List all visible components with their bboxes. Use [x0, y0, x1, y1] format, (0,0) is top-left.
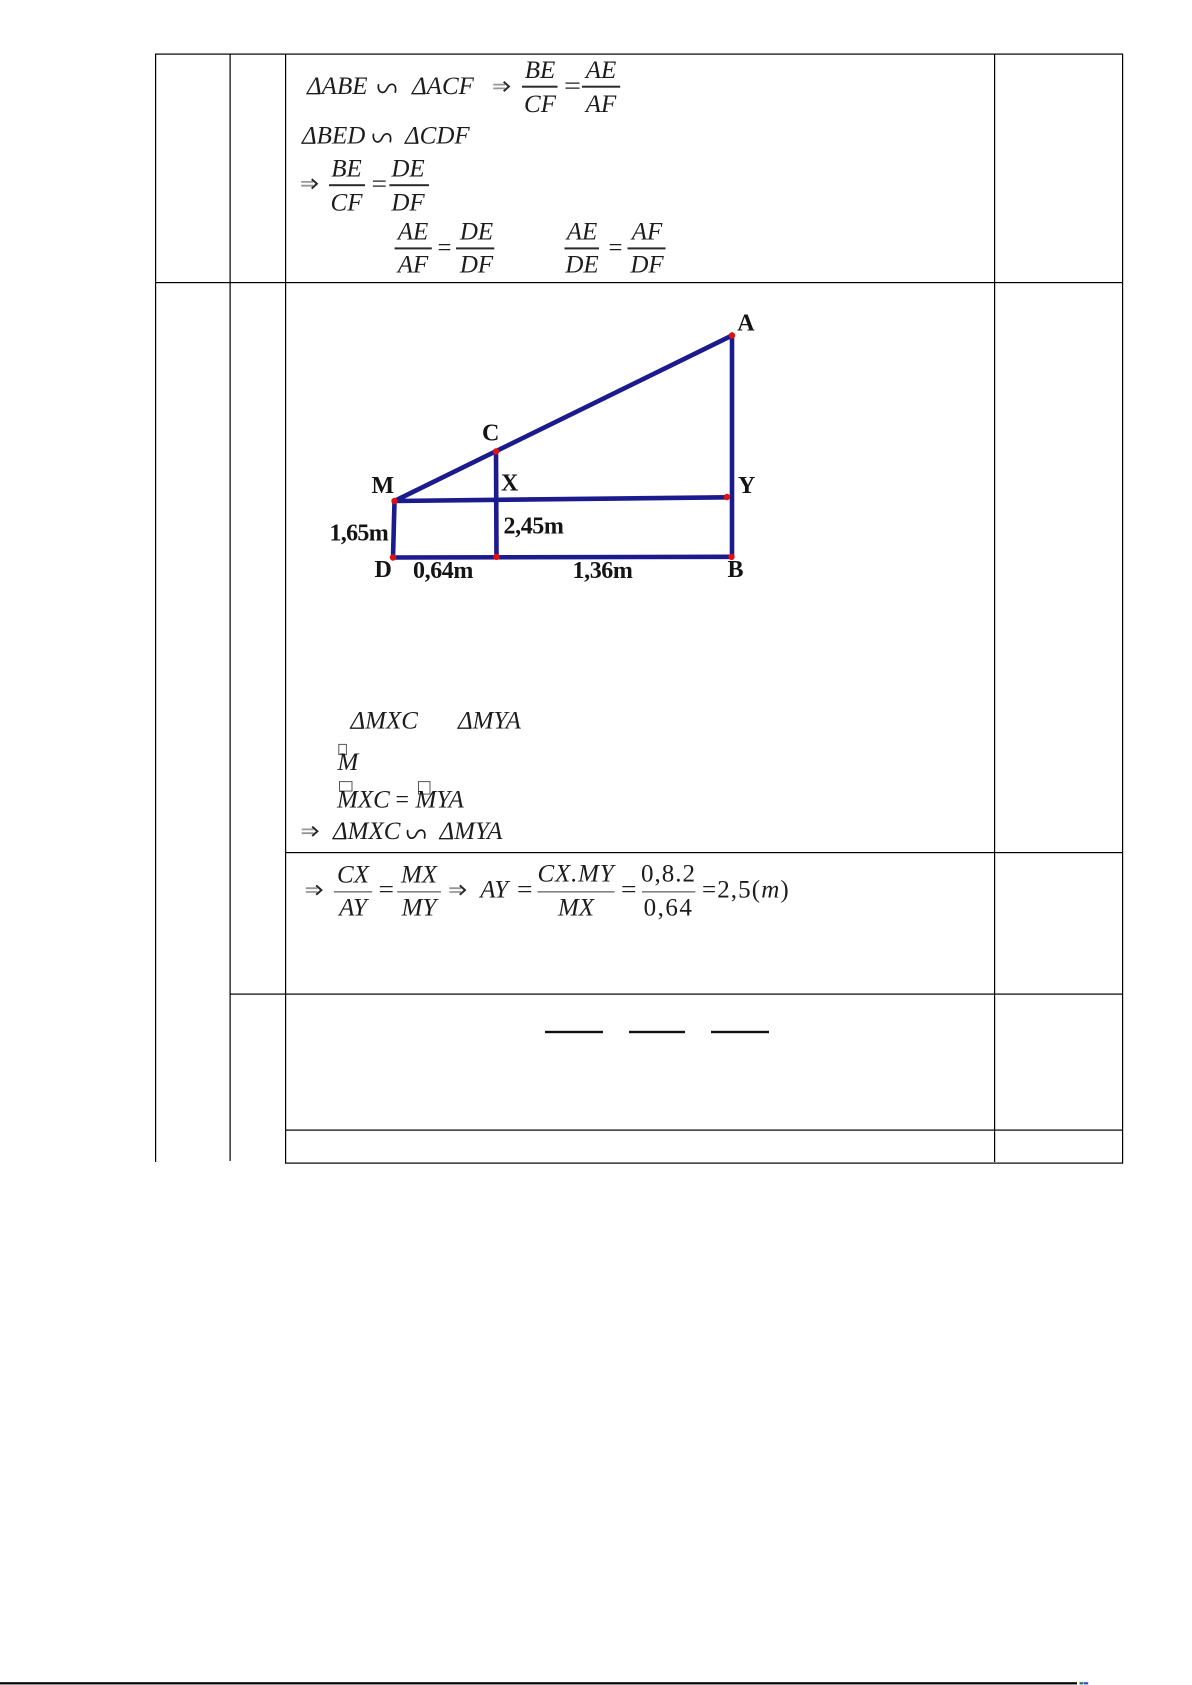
svg-text:MXC: MXC: [336, 787, 390, 814]
svg-text:CF: CF: [524, 91, 557, 118]
svg-text:AF: AF: [630, 219, 663, 246]
svg-text:MX: MX: [557, 895, 596, 922]
svg-text:DF: DF: [629, 252, 664, 279]
svg-text:Y: Y: [738, 473, 755, 499]
svg-text:=: =: [621, 877, 637, 904]
svg-text:DF: DF: [390, 190, 425, 217]
svg-text:AF: AF: [584, 91, 617, 118]
svg-text:=: =: [379, 877, 395, 904]
svg-text:1,36m: 1,36m: [573, 558, 633, 584]
svg-text:ΔMYA: ΔMYA: [439, 818, 504, 845]
svg-text:D: D: [375, 557, 392, 583]
svg-text:B: B: [728, 557, 744, 583]
svg-text:MYA: MYA: [415, 787, 465, 814]
svg-text:1,65m: 1,65m: [330, 521, 389, 547]
svg-text:=2,5(m): =2,5(m): [702, 877, 790, 904]
svg-text:ΔMYA: ΔMYA: [457, 707, 522, 734]
svg-text:MX: MX: [400, 862, 439, 889]
svg-text:AY: AY: [337, 895, 370, 922]
svg-text:=: =: [517, 877, 533, 904]
svg-text:CF: CF: [331, 190, 364, 217]
svg-text:MY: MY: [401, 895, 440, 922]
svg-text:ΔABE: ΔABE: [306, 73, 368, 100]
svg-text:ΔMXC: ΔMXC: [332, 818, 401, 845]
svg-text:DE: DE: [390, 156, 424, 183]
svg-text:CX.MY: CX.MY: [538, 861, 617, 888]
svg-text:=: =: [438, 235, 452, 262]
svg-text:A: A: [737, 311, 755, 337]
svg-text:AE: AE: [565, 219, 598, 246]
svg-text:ΔBED: ΔBED: [301, 123, 365, 150]
svg-text:AF: AF: [396, 252, 429, 279]
svg-text:M: M: [372, 473, 395, 499]
svg-text:DF: DF: [459, 252, 494, 279]
svg-text:AE: AE: [584, 57, 617, 84]
svg-text:AY: AY: [478, 877, 511, 904]
svg-text:DE: DE: [564, 252, 598, 279]
svg-text:AE: AE: [396, 219, 429, 246]
svg-text:C: C: [482, 421, 499, 447]
svg-text:ΔACF: ΔACF: [411, 73, 475, 100]
svg-text:=: =: [609, 235, 623, 262]
svg-text:BE: BE: [525, 57, 556, 84]
svg-text:DE: DE: [459, 219, 493, 246]
svg-text:2,45m: 2,45m: [504, 514, 564, 540]
svg-text:CX: CX: [337, 862, 371, 889]
svg-text:ΔCDF: ΔCDF: [404, 123, 470, 150]
svg-text:0,8.2: 0,8.2: [641, 861, 696, 888]
svg-text:=: =: [564, 73, 581, 100]
svg-text:0,64m: 0,64m: [413, 558, 473, 584]
svg-text:=: =: [372, 171, 388, 198]
svg-text:M: M: [337, 749, 360, 776]
svg-text:ΔMXC: ΔMXC: [350, 707, 419, 734]
svg-text:=: =: [396, 787, 410, 814]
svg-text:X: X: [501, 471, 519, 497]
svg-text:0,64: 0,64: [644, 895, 694, 922]
svg-text:BE: BE: [331, 156, 362, 183]
